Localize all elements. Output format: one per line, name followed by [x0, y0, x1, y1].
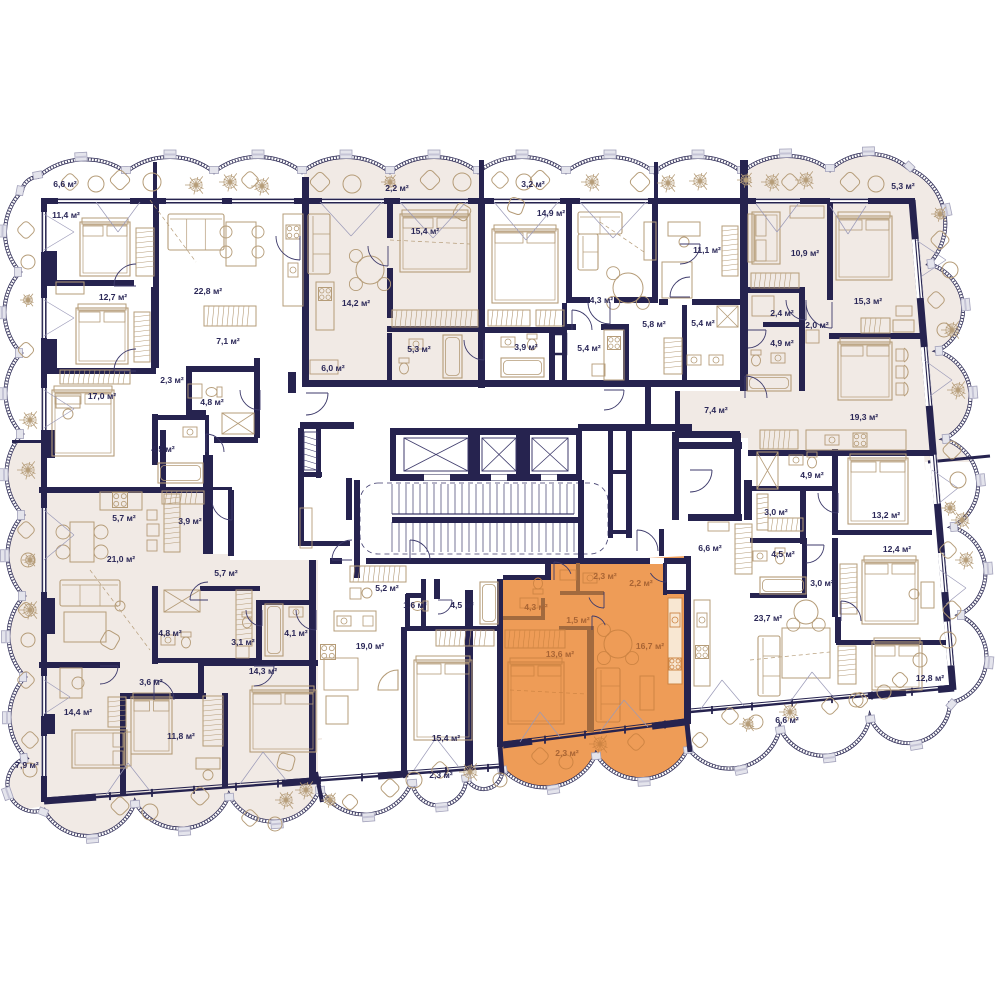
svg-text:12,7 м²: 12,7 м² — [99, 292, 127, 302]
svg-text:17,0 м²: 17,0 м² — [88, 391, 116, 401]
svg-text:2,4 м²: 2,4 м² — [770, 308, 794, 318]
svg-text:3,9 м²: 3,9 м² — [514, 342, 538, 352]
svg-text:2,3 м²: 2,3 м² — [429, 770, 453, 780]
svg-text:13,2 м²: 13,2 м² — [872, 510, 900, 520]
svg-text:1,5 м²: 1,5 м² — [566, 615, 590, 625]
svg-text:3,2 м²: 3,2 м² — [521, 179, 545, 189]
svg-text:14,4 м²: 14,4 м² — [64, 707, 92, 717]
svg-text:4,3 м²: 4,3 м² — [524, 602, 548, 612]
svg-text:12,4 м²: 12,4 м² — [883, 544, 911, 554]
svg-text:14,3 м²: 14,3 м² — [249, 666, 277, 676]
svg-text:23,7 м²: 23,7 м² — [754, 613, 782, 623]
svg-text:7,1 м²: 7,1 м² — [216, 336, 240, 346]
svg-text:5,7 м²: 5,7 м² — [214, 568, 238, 578]
svg-text:6,6 м²: 6,6 м² — [698, 543, 722, 553]
svg-text:4,9 м²: 4,9 м² — [770, 338, 794, 348]
svg-text:5,4 м²: 5,4 м² — [577, 343, 601, 353]
svg-text:5,3 м²: 5,3 м² — [407, 344, 431, 354]
svg-text:11,4 м²: 11,4 м² — [52, 210, 80, 220]
svg-text:2,2 м²: 2,2 м² — [629, 578, 653, 588]
svg-text:5,7 м²: 5,7 м² — [112, 513, 136, 523]
svg-text:10,9 м²: 10,9 м² — [791, 248, 819, 258]
svg-text:2,3 м²: 2,3 м² — [160, 375, 184, 385]
svg-text:16,7 м²: 16,7 м² — [636, 641, 664, 651]
svg-text:7,4 м²: 7,4 м² — [704, 405, 728, 415]
svg-text:13,6 м²: 13,6 м² — [546, 649, 574, 659]
svg-text:3,0 м²: 3,0 м² — [810, 578, 834, 588]
svg-text:5,3 м²: 5,3 м² — [891, 181, 915, 191]
svg-text:3,9 м²: 3,9 м² — [178, 516, 202, 526]
svg-text:11,8 м²: 11,8 м² — [167, 731, 195, 741]
svg-text:15,4 м²: 15,4 м² — [432, 733, 460, 743]
svg-text:4,8 м²: 4,8 м² — [200, 397, 224, 407]
svg-text:4,8 м²: 4,8 м² — [158, 628, 182, 638]
svg-text:1,6 м²: 1,6 м² — [403, 600, 427, 610]
svg-text:3,6 м²: 3,6 м² — [139, 677, 163, 687]
svg-text:14,3 м²: 14,3 м² — [585, 295, 613, 305]
svg-text:5,4 м²: 5,4 м² — [691, 318, 715, 328]
svg-text:4,5 м²: 4,5 м² — [151, 444, 175, 454]
svg-text:15,4 м²: 15,4 м² — [411, 226, 439, 236]
svg-text:3,0 м²: 3,0 м² — [764, 507, 788, 517]
svg-text:19,3 м²: 19,3 м² — [850, 412, 878, 422]
svg-text:3,1 м²: 3,1 м² — [231, 637, 255, 647]
svg-text:2,3 м²: 2,3 м² — [593, 571, 617, 581]
svg-text:6,6 м²: 6,6 м² — [53, 179, 77, 189]
svg-text:2,2 м²: 2,2 м² — [385, 183, 409, 193]
svg-text:14,2 м²: 14,2 м² — [342, 298, 370, 308]
svg-text:19,0 м²: 19,0 м² — [356, 641, 384, 651]
svg-text:5,8 м²: 5,8 м² — [642, 319, 666, 329]
svg-text:4,5 м²: 4,5 м² — [450, 600, 474, 610]
svg-text:22,8 м²: 22,8 м² — [194, 286, 222, 296]
svg-text:2,0 м²: 2,0 м² — [805, 320, 829, 330]
svg-text:4,1 м²: 4,1 м² — [284, 628, 308, 638]
svg-text:6,6 м²: 6,6 м² — [775, 715, 799, 725]
svg-text:15,3 м²: 15,3 м² — [854, 296, 882, 306]
svg-text:7,9 м²: 7,9 м² — [15, 760, 39, 770]
svg-text:6,0 м²: 6,0 м² — [321, 363, 345, 373]
svg-text:21,0 м²: 21,0 м² — [107, 554, 135, 564]
svg-text:5,2 м²: 5,2 м² — [375, 583, 399, 593]
svg-text:14,9 м²: 14,9 м² — [537, 208, 565, 218]
svg-text:11,1 м²: 11,1 м² — [693, 245, 721, 255]
svg-text:2,3 м²: 2,3 м² — [555, 748, 579, 758]
svg-text:12,8 м²: 12,8 м² — [916, 673, 944, 683]
svg-text:4,5 м²: 4,5 м² — [771, 549, 795, 559]
svg-text:4,9 м²: 4,9 м² — [800, 470, 824, 480]
